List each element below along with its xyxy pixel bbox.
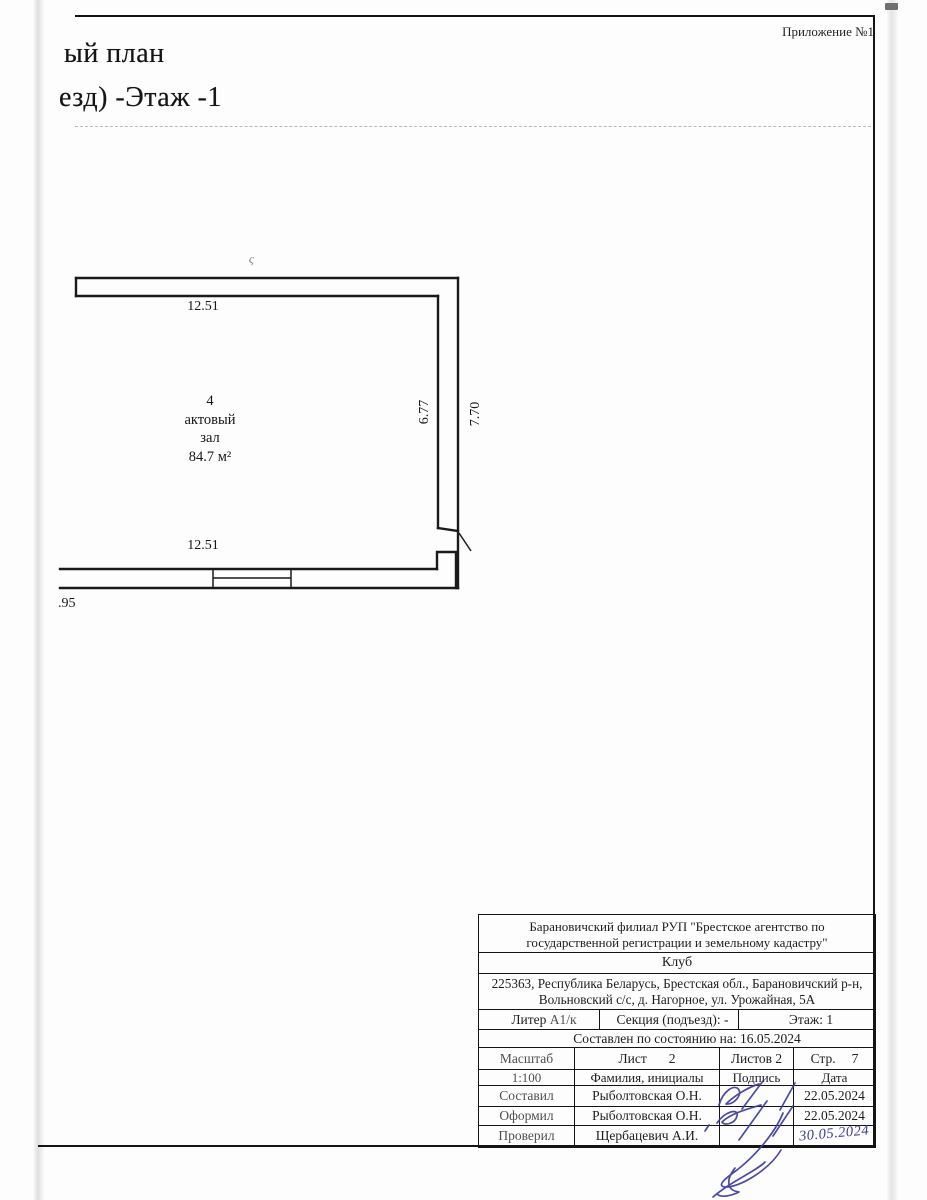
page-subtitle-fragment: езд) -Этаж -1: [59, 82, 222, 114]
header-divider-dashed: [75, 126, 871, 127]
role-cell: Составил: [479, 1086, 574, 1106]
page-label: Стр.: [811, 1051, 836, 1067]
room-area: 84.7 м²: [150, 448, 270, 467]
scale-value-cell: 1:100: [479, 1070, 574, 1085]
sheets-total-cell: Листов 2: [719, 1048, 793, 1069]
page-cell: Стр. 7: [793, 1048, 875, 1069]
room-name-line1: актовый: [150, 411, 270, 430]
scan-corner-mark: [885, 3, 898, 10]
page-title-fragment: ый план: [64, 38, 165, 70]
organization-name: Барановичский филиал РУП "Брестское аген…: [483, 919, 871, 951]
floor-plan-window-and-door: [213, 533, 471, 588]
organization-cell: Барановичский филиал РУП "Брестское аген…: [479, 915, 875, 952]
room-name-line2: зал: [150, 429, 270, 448]
dimension-inner-right: 6.77: [417, 389, 433, 435]
sheet-number: 2: [669, 1051, 676, 1067]
dimension-left-partial: .95: [58, 596, 98, 612]
liter-row: Литер А1/к Секция (подъезд): - Этаж: 1: [479, 1009, 875, 1029]
address-cell: 225363, Республика Беларусь, Брестская о…: [479, 973, 875, 1009]
sheet-cell: Лист 2: [574, 1048, 719, 1069]
liter-cell: Литер А1/к: [479, 1010, 599, 1029]
compiled-date-cell: Составлен по состоянию на: 16.05.2024: [479, 1029, 875, 1047]
scan-edge-right: [887, 0, 898, 1200]
floor-plan-drawing: [55, 250, 485, 620]
page-frame-top: [75, 15, 875, 17]
dimension-bottom: 12.51: [180, 538, 226, 554]
floor-cell: Этаж: 1: [738, 1010, 875, 1029]
dimension-outer-right: 7.70: [468, 391, 484, 437]
liter-label: Литер: [511, 1012, 546, 1028]
role-cell: Оформил: [479, 1107, 574, 1125]
sheet-label: Лист: [618, 1051, 646, 1067]
section-cell: Секция (подъезд): -: [599, 1010, 738, 1029]
scale-sheet-row: Масштаб Лист 2 Листов 2 Стр. 7: [479, 1047, 875, 1069]
room-number: 4: [150, 392, 270, 411]
liter-value: А1/к: [550, 1012, 577, 1028]
scale-label-cell: Масштаб: [479, 1048, 574, 1069]
scan-edge-left: [33, 0, 44, 1200]
page-number: 7: [852, 1051, 859, 1067]
object-name-cell: Клуб: [479, 952, 875, 973]
appendix-label: Приложение №1: [764, 24, 874, 40]
role-cell: Проверил: [479, 1126, 574, 1145]
room-label: 4 актовый зал 84.7 м²: [150, 392, 270, 466]
dimension-top: 12.51: [180, 299, 226, 315]
